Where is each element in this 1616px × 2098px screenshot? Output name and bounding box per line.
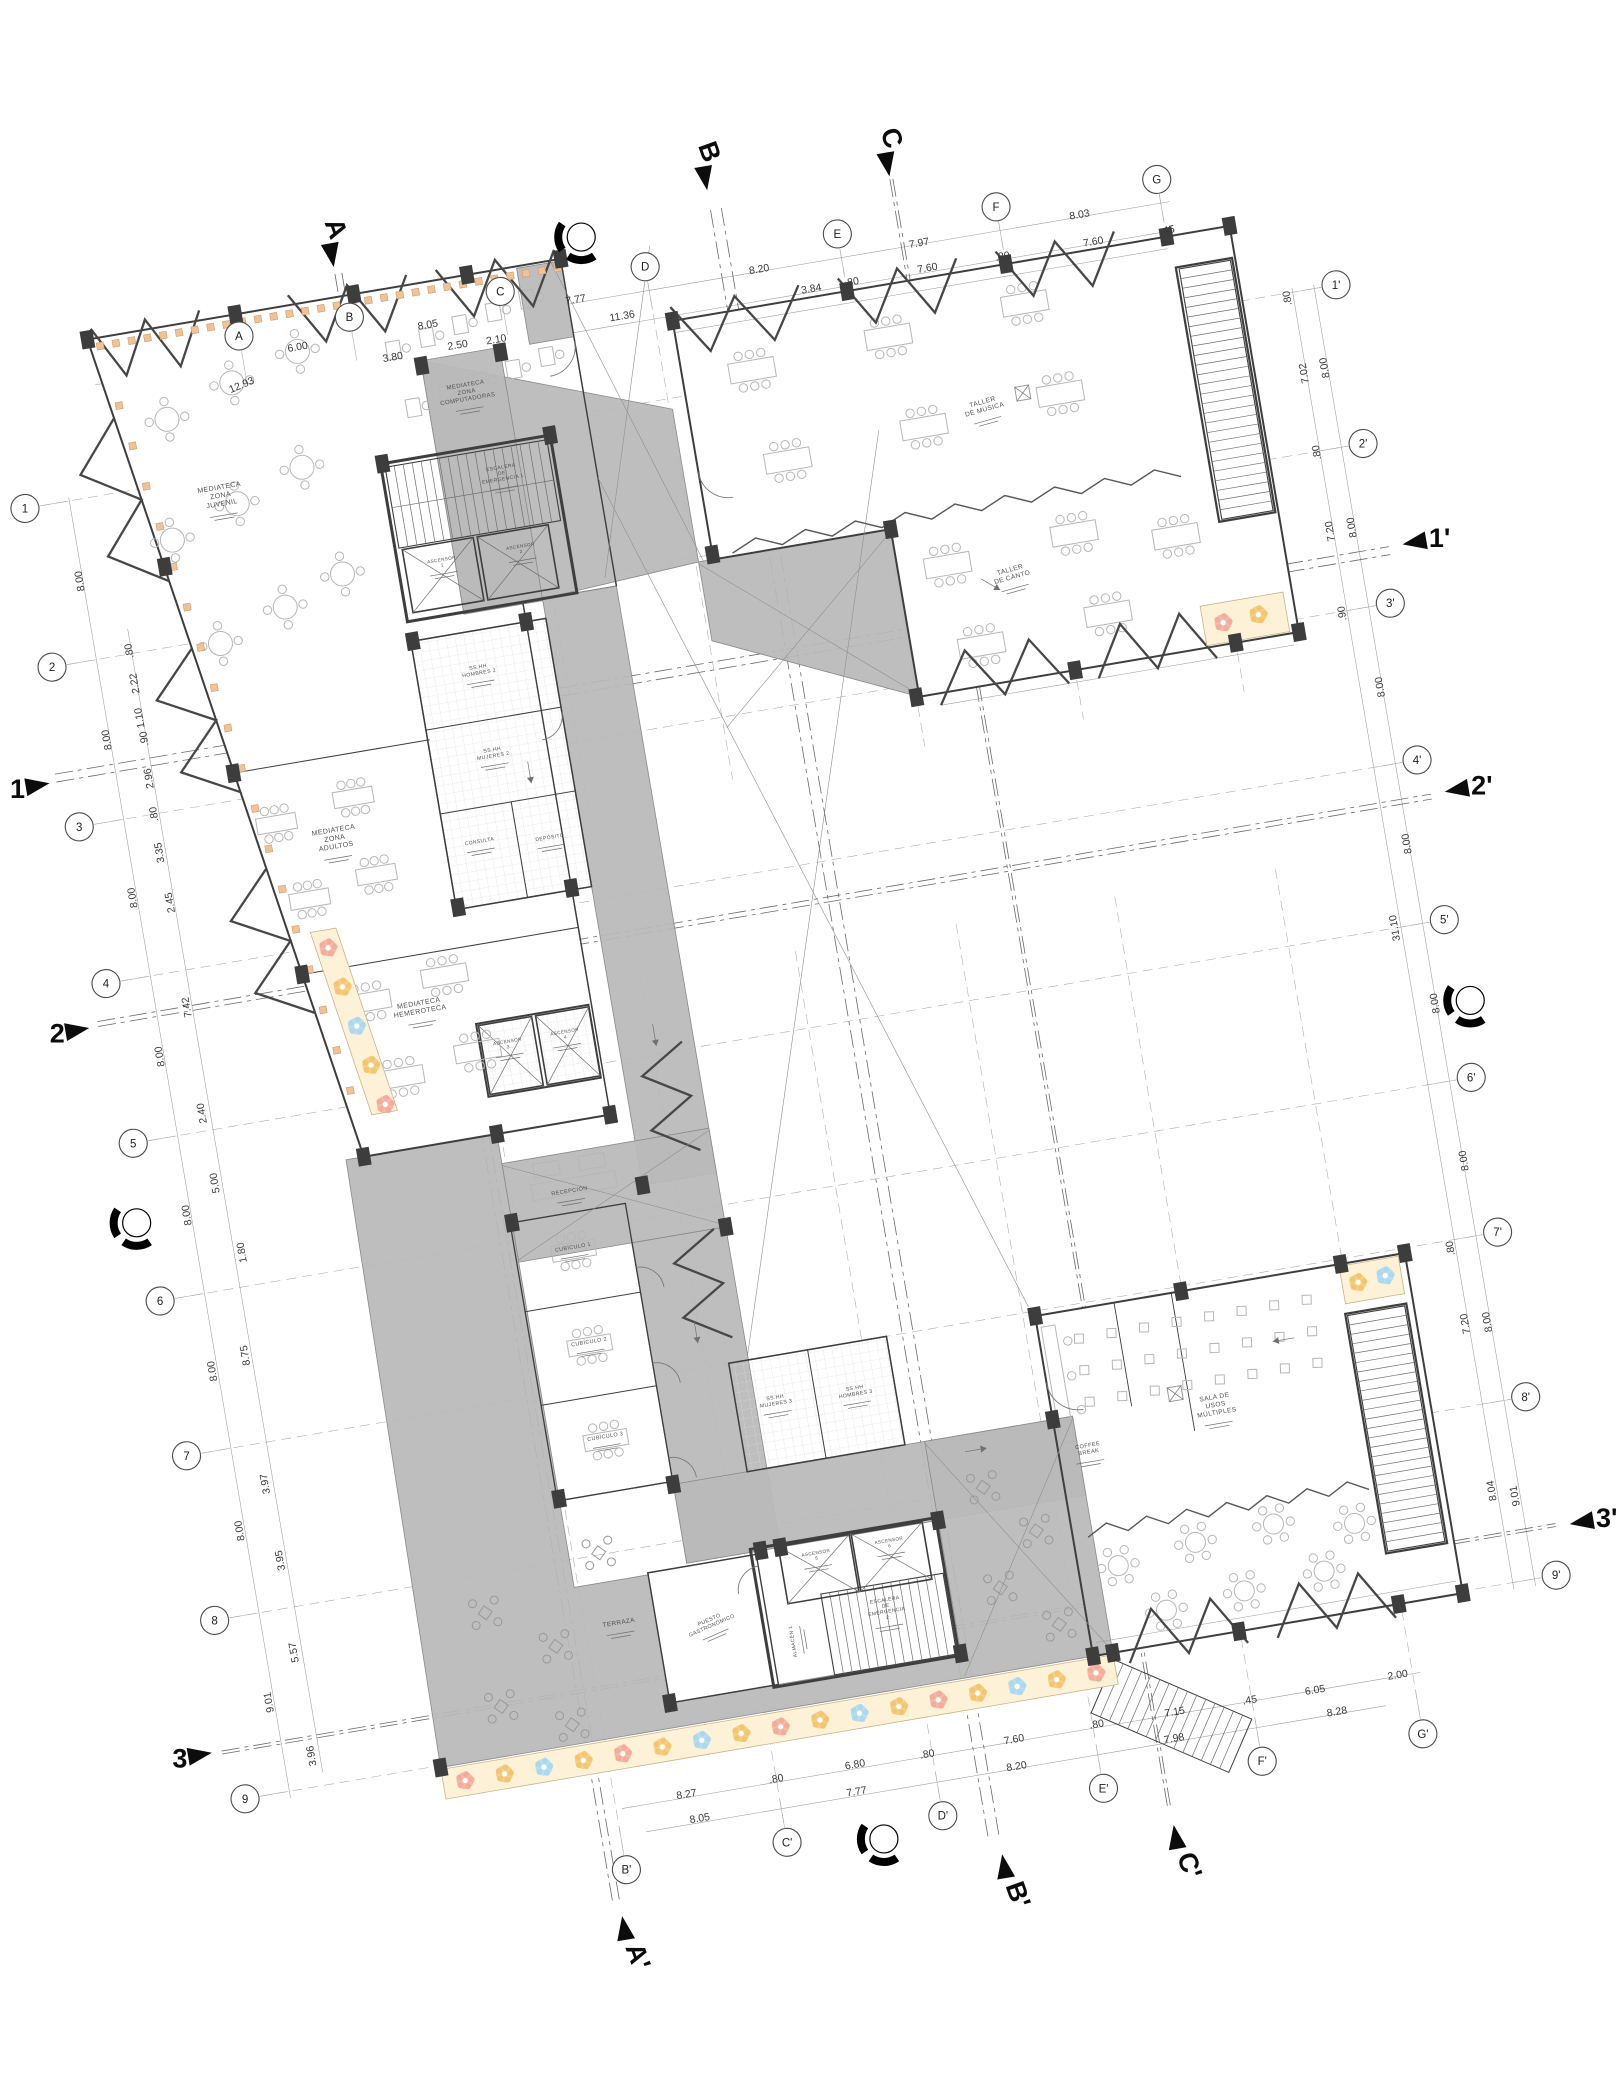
dim-label: .45 xyxy=(1242,1693,1259,1707)
svg-text:F': F' xyxy=(1258,1756,1267,1768)
dim-label: 8.05 xyxy=(689,1811,711,1826)
section-marker: C xyxy=(872,123,914,178)
svg-text:A: A xyxy=(235,331,243,343)
dim-label: 7.20 xyxy=(1323,520,1338,542)
section-marker: 1 xyxy=(5,768,52,807)
dim-label: .80 xyxy=(147,806,161,823)
grid-bubble: 1 xyxy=(9,492,41,524)
svg-text:D': D' xyxy=(938,1811,949,1823)
floor-plan-svg: ABCDEFGB'C'D'E'F'G'1234567891'2'3'4'5'6'… xyxy=(0,0,1616,2098)
grid-bubble: 7' xyxy=(1481,1216,1513,1248)
dim-label: 8.00 xyxy=(1317,357,1332,379)
svg-text:2: 2 xyxy=(50,1019,65,1049)
grid-bubble: 2' xyxy=(1347,427,1379,459)
dim-label: 8.28 xyxy=(1326,1704,1348,1719)
svg-text:4: 4 xyxy=(103,979,110,991)
dim-label: 8.00 xyxy=(205,1360,220,1382)
grid-bubble: 8' xyxy=(1510,1381,1542,1413)
dim-label: 2.00 xyxy=(1387,1668,1409,1683)
dim-label: 8.00 xyxy=(152,1045,167,1067)
svg-text:1: 1 xyxy=(10,774,25,804)
svg-text:B': B' xyxy=(1000,1877,1037,1912)
dim-label: 3.96 xyxy=(304,1745,319,1767)
section-marker: A xyxy=(317,214,359,269)
dim-label: 2.22 xyxy=(127,672,142,694)
dim-label: 7.20 xyxy=(1458,1313,1473,1335)
grid-bubble: 5' xyxy=(1428,903,1460,935)
dim-label: 8.00 xyxy=(99,729,114,751)
grid-bubble: D' xyxy=(927,1800,959,1832)
dim-label: 8.75 xyxy=(238,1344,253,1366)
svg-text:4': 4' xyxy=(1413,755,1422,767)
grid-bubble: G' xyxy=(1407,1718,1439,1750)
grid-bubble: 7 xyxy=(170,1440,202,1472)
svg-text:1': 1' xyxy=(1429,523,1450,553)
grid-bubble: 5 xyxy=(117,1127,149,1159)
section-marker: B' xyxy=(993,1850,1037,1913)
svg-text:B': B' xyxy=(621,1865,631,1877)
dim-label: 9.01 xyxy=(262,1691,277,1713)
grid-bubble: E' xyxy=(1087,1772,1119,1804)
svg-text:B: B xyxy=(692,137,727,165)
dim-label: .80 xyxy=(919,1747,936,1761)
svg-text:8: 8 xyxy=(211,1615,217,1627)
grid-bubble: 3 xyxy=(63,811,95,843)
dim-label: 8.00 xyxy=(179,1204,194,1226)
section-marker: 1' xyxy=(1400,520,1455,561)
section-marker: A' xyxy=(613,1912,657,1975)
section-marker: C' xyxy=(1165,1821,1209,1884)
dim-label: .45 xyxy=(1159,223,1176,237)
grid-bubble: 4 xyxy=(90,967,122,999)
dim-label: 7.60 xyxy=(1003,1732,1025,1747)
section-marker: 2' xyxy=(1442,767,1497,808)
svg-text:3: 3 xyxy=(76,822,82,834)
dim-label: 2.40 xyxy=(195,1102,210,1124)
svg-text:6: 6 xyxy=(157,1296,163,1308)
dim-label: .80 xyxy=(1280,290,1294,307)
dim-label: 8.00 xyxy=(1456,1150,1471,1172)
grid-bubble: E xyxy=(821,218,853,250)
svg-text:2': 2' xyxy=(1359,439,1368,451)
section-marker: B xyxy=(690,137,732,192)
dim-label: .80 xyxy=(994,249,1011,263)
dim-label: .80 xyxy=(1310,444,1324,461)
grid-bubble: B' xyxy=(610,1854,642,1886)
dim-label: 8.00 xyxy=(1480,1311,1495,1333)
drawing-sheet: ABCDEFGB'C'D'E'F'G'1234567891'2'3'4'5'6'… xyxy=(0,0,1616,2098)
dim-label: 5.57 xyxy=(286,1641,301,1663)
dim-label: .80 xyxy=(122,643,136,660)
dim-label: 1.80 xyxy=(234,1241,249,1263)
dim-label: 3.84 xyxy=(800,281,822,296)
grid-bubble: F xyxy=(980,191,1012,223)
dim-label: 1.10 xyxy=(132,707,147,729)
svg-text:E: E xyxy=(834,229,842,241)
dim-label: 8.00 xyxy=(1344,516,1359,538)
grid-bubble: 8 xyxy=(198,1604,230,1636)
svg-text:6': 6' xyxy=(1467,1072,1476,1084)
dim-label: .80 xyxy=(1088,1717,1105,1731)
dim-label: 9.01 xyxy=(1508,1485,1523,1507)
svg-text:C': C' xyxy=(782,1837,793,1849)
grid-bubble: 4' xyxy=(1401,744,1433,776)
dim-label: 7.02 xyxy=(1297,362,1312,384)
svg-text:9': 9' xyxy=(1552,1570,1561,1582)
svg-text:1: 1 xyxy=(22,503,28,515)
dim-label: 8.00 xyxy=(125,887,140,909)
svg-text:C': C' xyxy=(1171,1848,1208,1883)
svg-text:A': A' xyxy=(620,1939,657,1974)
grid-bubble: C' xyxy=(771,1826,803,1858)
dim-label: 8.00 xyxy=(1428,992,1443,1014)
grid-bubble: F' xyxy=(1246,1745,1278,1777)
grid-bubble: 9' xyxy=(1540,1559,1572,1591)
grid-bubble: 9 xyxy=(229,1783,261,1815)
dim-label: 6.05 xyxy=(1304,1683,1326,1698)
svg-text:5: 5 xyxy=(130,1138,136,1150)
dim-label: 2.45 xyxy=(163,891,178,913)
dim-label: 7.42 xyxy=(179,996,194,1018)
svg-text:G: G xyxy=(1152,174,1161,186)
grid-bubble: 6 xyxy=(144,1285,176,1317)
dim-label: 11.36 xyxy=(609,308,636,324)
dim-label: .90 xyxy=(137,730,151,747)
svg-text:1': 1' xyxy=(1332,280,1341,292)
grid-bubble: D xyxy=(629,251,661,283)
dim-label: 7.98 xyxy=(1163,1731,1185,1746)
floor-plan-rotated-group: ABCDEFGB'C'D'E'F'G'1234567891'2'3'4'5'6'… xyxy=(0,27,1616,2046)
dim-label: .80 xyxy=(843,275,860,289)
dim-label: .80 xyxy=(768,1772,785,1786)
dim-label: 7.15 xyxy=(1164,1705,1186,1720)
orientation-symbol xyxy=(114,1209,151,1246)
dim-label: 8.00 xyxy=(72,570,87,592)
svg-text:5': 5' xyxy=(1440,915,1449,927)
dim-label: 7.77 xyxy=(565,292,587,307)
svg-text:3': 3' xyxy=(1386,598,1395,610)
dim-label: 3.35 xyxy=(152,841,167,863)
dim-label: 5.00 xyxy=(207,1172,222,1194)
svg-text:A: A xyxy=(319,214,354,242)
svg-text:C: C xyxy=(496,286,504,298)
svg-text:7': 7' xyxy=(1493,1227,1502,1239)
svg-text:3': 3' xyxy=(1596,1503,1616,1533)
svg-text:2: 2 xyxy=(49,662,55,674)
svg-text:B: B xyxy=(346,312,354,324)
dim-label: .90 xyxy=(1335,605,1349,622)
svg-text:D: D xyxy=(641,262,649,274)
svg-text:F: F xyxy=(993,202,1000,214)
orientation-symbol xyxy=(861,1825,898,1862)
grid-bubble: 2 xyxy=(36,651,68,683)
grid-bubble: 1' xyxy=(1320,269,1352,301)
svg-text:3: 3 xyxy=(172,1743,187,1773)
orientation-symbol xyxy=(1447,986,1484,1023)
dim-label: 8.00 xyxy=(1399,833,1414,855)
dim-label: 7.97 xyxy=(908,236,930,251)
svg-text:E': E' xyxy=(1099,1783,1109,1795)
grid-bubble: 3' xyxy=(1374,587,1406,619)
dim-label: 3.95 xyxy=(273,1549,288,1571)
svg-text:7: 7 xyxy=(183,1451,189,1463)
dim-label: 8.03 xyxy=(1069,207,1091,222)
svg-text:G': G' xyxy=(1417,1729,1428,1741)
svg-text:C: C xyxy=(874,124,909,152)
grid-bubble: G xyxy=(1141,163,1173,195)
dim-label: 8.20 xyxy=(748,262,770,277)
dim-label: 8.00 xyxy=(232,1520,247,1542)
dim-label: 7.77 xyxy=(846,1784,868,1799)
section-marker: 3 xyxy=(167,1737,214,1776)
section-marker: 3' xyxy=(1567,1499,1616,1540)
dim-label: 3.97 xyxy=(258,1473,273,1495)
dim-label: 8.04 xyxy=(1484,1480,1499,1502)
grid-bubble: 6' xyxy=(1455,1061,1487,1093)
dim-label: 7.60 xyxy=(916,261,938,276)
svg-text:9: 9 xyxy=(242,1794,248,1806)
dim-label: 6.80 xyxy=(844,1757,866,1772)
dim-label: 8.27 xyxy=(676,1787,698,1802)
dim-label: .80 xyxy=(1443,1240,1457,1257)
dim-label: 8.00 xyxy=(1373,676,1388,698)
section-marker: 2 xyxy=(45,1012,92,1051)
svg-text:8': 8' xyxy=(1521,1392,1530,1404)
dim-label: 2.96 xyxy=(141,767,156,789)
dim-label: 8.20 xyxy=(1006,1759,1028,1774)
dim-label: 31.10 xyxy=(1387,914,1403,942)
svg-text:2': 2' xyxy=(1471,771,1492,801)
